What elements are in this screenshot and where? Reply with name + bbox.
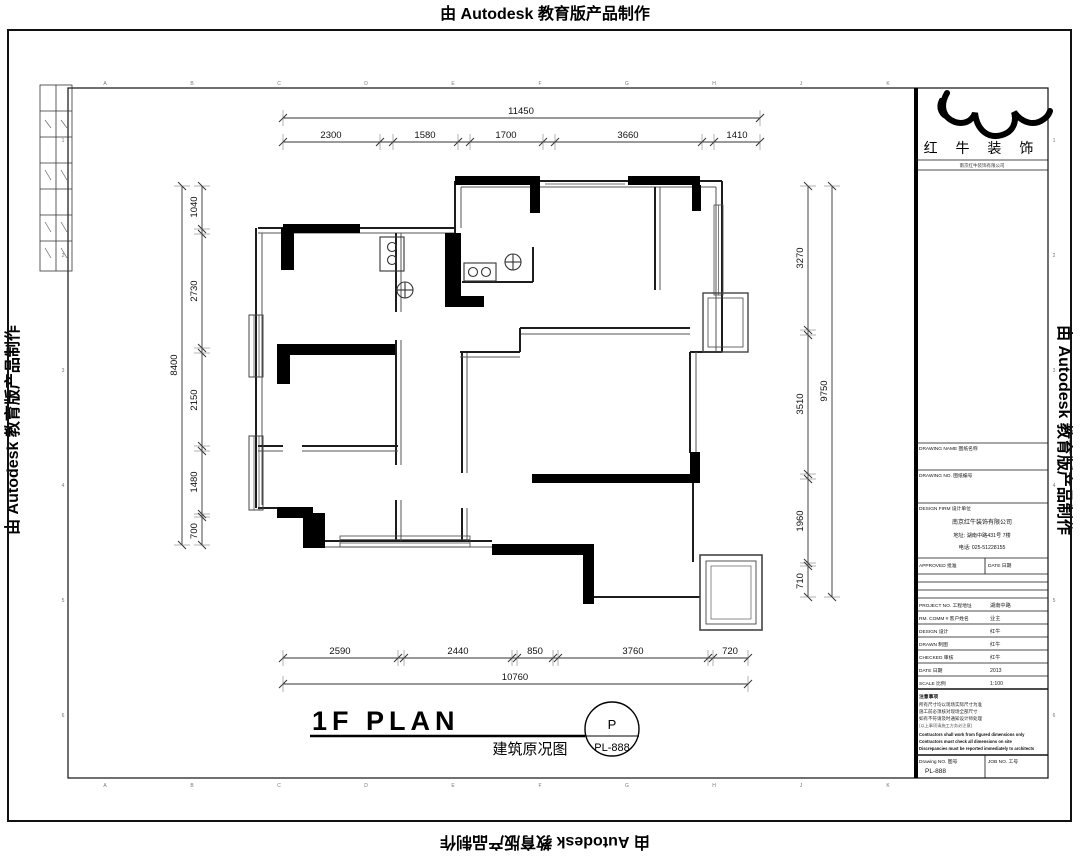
grid-ref-label: 6 xyxy=(1053,713,1056,719)
company-phone: 电话: 025-51228155 xyxy=(959,543,1006,551)
balcony-bottom-right xyxy=(700,555,762,630)
brand-subline: 南京红牛装饰有限公司 xyxy=(960,162,1005,169)
notes-title: 注意事项 xyxy=(919,693,938,700)
drawn-label: DRAWN 制图 xyxy=(919,641,948,648)
floor-plan xyxy=(249,176,762,630)
scale-value: 1:100 xyxy=(990,681,1003,687)
bull-swoosh-icon xyxy=(943,93,1050,136)
project-label: PROJECT NO. 工程地址 xyxy=(919,602,972,609)
dim-bottom-seg: 2440 xyxy=(447,646,468,657)
company-name: 南京红牛装饰有限公司 xyxy=(952,518,1012,526)
grid-ref-label: D xyxy=(364,81,368,87)
dim-top-seg: 1410 xyxy=(726,130,747,141)
watermark-left: 由 Autodesk 教育版产品制作 xyxy=(3,325,22,535)
dim-left-seg: 1480 xyxy=(189,471,200,492)
grid-ref-label: C xyxy=(277,783,281,789)
stamp-letter: P xyxy=(608,717,617,732)
note-line: 所有尺寸均以现场实际尺寸为准 xyxy=(919,701,982,708)
title-block-labels: DRAWING NAME 图纸名称 DRAWING NO. 图纸编号 DESIG… xyxy=(919,445,1035,775)
watermark-bottom: 由 Autodesk 教育版产品制作 xyxy=(440,833,650,852)
title-block: 红 牛 装 饰 南京红牛装饰有限公司 DRAWING NAME 图纸名称 DRA… xyxy=(916,93,1050,778)
approved-label: APPROVED 批准 xyxy=(919,562,957,569)
date-label: DATE 日期 xyxy=(919,668,943,674)
grid-ref-label: B xyxy=(190,783,194,789)
room-value: 业主 xyxy=(990,614,1000,622)
dimensions: 11450 2300 1580 1700 3660 1410 8400 1040… xyxy=(169,106,840,692)
grid-ref-label: K xyxy=(886,81,890,87)
grid-ref-label: 5 xyxy=(1053,598,1056,604)
project-value: 湖南中路 xyxy=(990,601,1012,609)
dim-right-seg: 3510 xyxy=(795,393,806,414)
note-en: Discrepancies must be reported immediate… xyxy=(919,746,1035,751)
dim-left-seg: 1040 xyxy=(189,196,200,217)
grid-ref-label: 1 xyxy=(1053,138,1056,144)
grid-ref-label: E xyxy=(451,81,455,87)
grid-ref-label: E xyxy=(451,783,455,789)
checked-value: 红牛 xyxy=(990,653,1000,661)
design-label: DESIGN 设计 xyxy=(919,628,949,635)
walls-thin xyxy=(256,181,722,597)
dim-bottom-seg: 3760 xyxy=(622,646,643,657)
dim-left-seg: 2730 xyxy=(189,280,200,301)
dim-bottom-seg: 2590 xyxy=(329,646,350,657)
dim-left-seg: 2150 xyxy=(189,389,200,410)
grid-ref-label: B xyxy=(190,81,194,87)
grid-ref-label: 2 xyxy=(62,253,65,259)
watermark-top: 由 Autodesk 教育版产品制作 xyxy=(440,4,650,23)
grid-ref-label: A xyxy=(103,81,107,87)
brand-name: 红 牛 装 饰 xyxy=(924,140,1041,156)
dim-bottom-overall: 10760 xyxy=(502,672,528,683)
grid-ref-label: G xyxy=(625,81,629,87)
floor-drain-symbol xyxy=(397,282,413,298)
company-address: 地址: 湖南中路431号 7楼 xyxy=(953,531,1010,539)
watermark-group: 由 Autodesk 教育版产品制作 由 Autodesk 教育版产品制作 由 … xyxy=(3,4,1074,852)
drawing-name-label: DRAWING NAME 图纸名称 xyxy=(919,445,978,452)
grid-ref-label: F xyxy=(538,783,541,789)
dim-left-overall: 8400 xyxy=(169,354,180,375)
grid-ref-label: G xyxy=(625,783,629,789)
floor-drain-symbol xyxy=(505,254,521,270)
drawingno-label: Drawing NO. 图号 xyxy=(919,759,958,765)
drawing-sheet: 由 Autodesk 教育版产品制作 由 Autodesk 教育版产品制作 由 … xyxy=(0,0,1080,864)
grid-ref-label: F xyxy=(538,81,541,87)
scale-label: SCALE 比例 xyxy=(919,680,946,687)
dim-right-overall: 9750 xyxy=(819,380,830,401)
bay-window-right xyxy=(703,293,748,352)
grid-ref-label: D xyxy=(364,783,368,789)
windows xyxy=(249,184,762,630)
dim-top-seg: 2300 xyxy=(320,130,341,141)
dimension-ticks xyxy=(174,110,840,692)
design-value: 红牛 xyxy=(990,627,1000,635)
grid-ref-label: 3 xyxy=(62,368,65,374)
dim-top-seg: 3660 xyxy=(617,130,638,141)
note-line: 如有不符请及时通知设计师处理 xyxy=(919,715,982,722)
kitchen-counter-horizontal xyxy=(464,263,496,281)
dim-top-seg: 1580 xyxy=(414,130,435,141)
grid-ref-label: J xyxy=(800,783,803,789)
dim-top-overall: 11450 xyxy=(508,106,534,117)
grid-ref-label: 6 xyxy=(62,713,65,719)
grid-ref-label: 5 xyxy=(62,598,65,604)
drawing-no-label: DRAWING NO. 图纸编号 xyxy=(919,472,973,479)
revision-strip xyxy=(40,85,72,271)
dim-bottom-seg: 720 xyxy=(722,646,738,657)
drawingno-value: PL-888 xyxy=(925,768,946,775)
grid-ref-label: 2 xyxy=(1053,253,1056,259)
plan-subtitle: 建筑原况图 xyxy=(492,741,567,758)
date2-label: DATE 日期 xyxy=(988,563,1012,569)
dim-right-seg: 3270 xyxy=(795,247,806,268)
sheet-frame: AABBCCDDEEFFGGHHJJKK112233445566 xyxy=(8,30,1071,821)
grid-ref-label: H xyxy=(712,81,716,87)
note-en: Contractors must check all dimensions on… xyxy=(919,739,1013,744)
grid-ref-label: 4 xyxy=(1053,483,1056,489)
grid-ref-label: 4 xyxy=(62,483,65,489)
stamp-number: PL-888 xyxy=(594,742,629,754)
brand-logo xyxy=(939,93,1050,136)
plan-title: 1F PLAN xyxy=(312,706,460,736)
firm-label: DESIGN FIRM 设计单位 xyxy=(919,505,971,512)
grid-ref-label: A xyxy=(103,783,107,789)
checked-label: CHECKED 审核 xyxy=(919,654,954,661)
grid-ref-label: H xyxy=(712,783,716,789)
cad-canvas: 由 Autodesk 教育版产品制作 由 Autodesk 教育版产品制作 由 … xyxy=(0,0,1080,864)
drawing-number-stamp: P PL-888 xyxy=(585,702,639,756)
grid-ref-label: K xyxy=(886,783,890,789)
room-label: RM. COMM # 客户姓名 xyxy=(919,615,969,622)
dimension-labels: 11450 2300 1580 1700 3660 1410 8400 1040… xyxy=(169,106,830,683)
drawing-title: 1F PLAN 建筑原况图 P PL-888 xyxy=(310,702,639,758)
kitchen-counter-vertical xyxy=(380,237,404,271)
dim-left-seg: 700 xyxy=(189,523,200,539)
grid-ref-label: C xyxy=(277,81,281,87)
dim-bottom-seg: 850 xyxy=(527,646,543,657)
date-value: 2013 xyxy=(990,668,1002,674)
note-line: (以上事项请施工方务必注意) xyxy=(919,722,973,729)
dim-right-seg: 1960 xyxy=(795,510,806,531)
grid-ref-label: 1 xyxy=(62,138,65,144)
dim-top-seg: 1700 xyxy=(495,130,516,141)
dim-right-seg: 710 xyxy=(795,573,806,589)
note-line: 施工前必须核对现场全部尺寸 xyxy=(919,708,978,715)
dimension-lines xyxy=(182,118,832,684)
grid-ref-label: 3 xyxy=(1053,368,1056,374)
drawn-value: 红牛 xyxy=(990,640,1000,648)
note-en: Contractors shall work from figured dime… xyxy=(919,732,1025,737)
grid-ref-label: J xyxy=(800,81,803,87)
jobno-label: JOB NO. 工号 xyxy=(988,759,1018,765)
